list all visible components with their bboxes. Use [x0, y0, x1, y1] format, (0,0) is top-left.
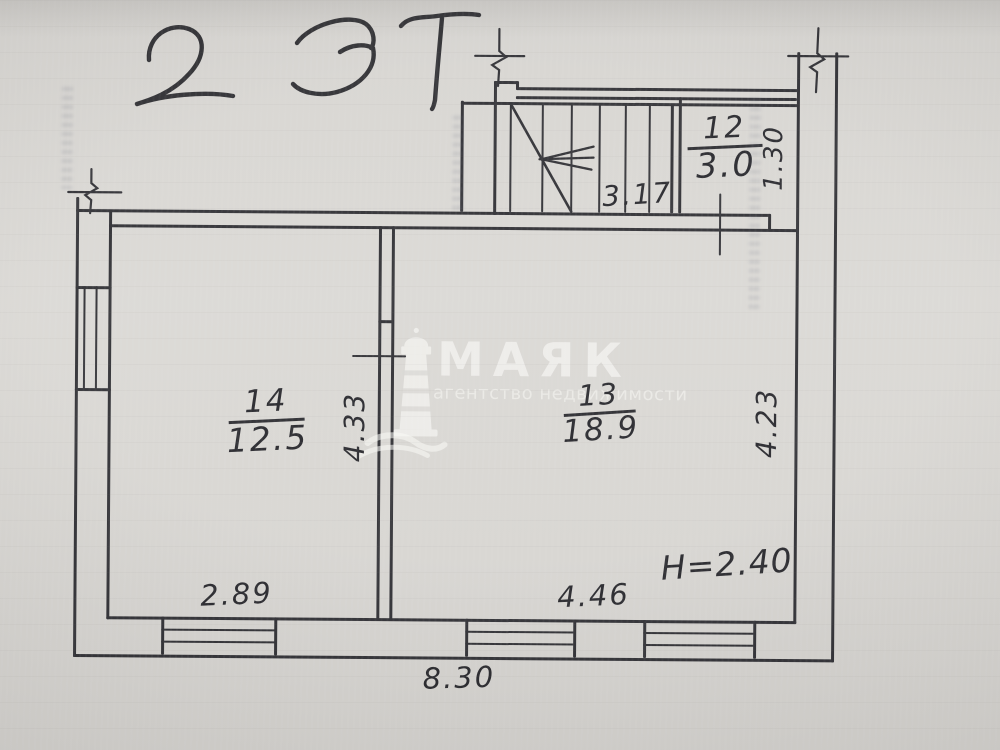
room-area: 3.0 [695, 147, 757, 184]
floor-plan-photo: МАЯК агентство недвижимости 12 3.0 13 18… [0, 0, 1000, 750]
partition-line-right [389, 226, 394, 620]
dim-overall-width: 8.30 [413, 662, 504, 694]
window2-jamb-right [573, 620, 576, 658]
wall-top-inner [109, 224, 798, 231]
stair-top-wall-outer [516, 87, 800, 92]
window2-pane1 [465, 631, 575, 634]
room-label-14: 14 12.5 [190, 383, 343, 459]
window1-pane1 [161, 629, 276, 632]
stair-tread-line [541, 104, 544, 212]
window-left-bottom [75, 388, 111, 391]
window3-jamb-right [753, 621, 756, 659]
window3-jamb-left [643, 620, 646, 658]
paper-bleed-mark [452, 116, 464, 212]
stair-direction-arrow [539, 146, 593, 169]
room12-dim-tick [719, 194, 722, 256]
window2-pane2 [465, 643, 575, 646]
wall-left-outer [73, 197, 79, 657]
dim-room13-width: 4.46 [548, 580, 639, 613]
wall-break-stair-left [475, 29, 524, 86]
floor-plan-sheet: МАЯК агентство недвижимости 12 3.0 13 18… [0, 0, 1000, 750]
stair-step-horizontal [494, 81, 518, 84]
window-left-top [76, 286, 112, 289]
window-left-pane2 [95, 286, 98, 390]
dim-right-height: 4.23 [753, 385, 782, 460]
partition-dim-tick [352, 355, 406, 358]
dim-stair-length: 3.17 [600, 179, 674, 211]
dim-room12-width: 1.30 [761, 120, 788, 195]
partition-rung [378, 320, 393, 323]
window2-jamb-left [465, 619, 468, 657]
stair-tread-line [570, 104, 573, 212]
room-label-13: 13 18.9 [533, 377, 667, 450]
window1-jamb-right [274, 617, 277, 655]
room-area: 12.5 [226, 421, 309, 458]
window1-pane2 [161, 641, 276, 644]
wall-right-inner [793, 52, 800, 624]
wall-top-outer [76, 209, 770, 217]
room-area: 18.9 [561, 412, 640, 448]
window3-pane1 [643, 632, 755, 635]
dim-left-height: 4.33 [341, 389, 370, 464]
wall-bottom-inner [106, 616, 796, 624]
partition-line-left [376, 226, 381, 620]
paper-bleed-mark [748, 98, 760, 310]
window1-jamb-left [161, 617, 164, 655]
stair-step-vertical [516, 81, 519, 89]
dim-ceiling-height: H=2.40 [641, 542, 813, 586]
window3-pane2 [643, 644, 755, 647]
wall-right-outer [831, 52, 838, 662]
paper-bleed-mark [61, 87, 73, 189]
window-left-pane1 [83, 286, 86, 390]
stair-tread-line [509, 104, 512, 212]
dim-room14-width: 2.89 [191, 578, 282, 611]
wall-left-inner [106, 210, 112, 619]
